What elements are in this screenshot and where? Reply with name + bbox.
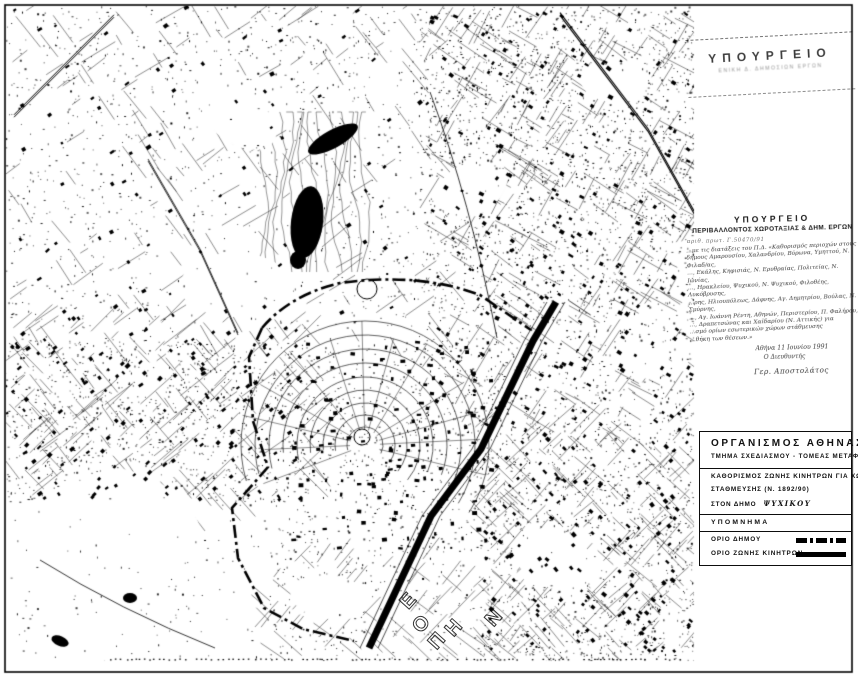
ministry-stamp-top: ΥΠΟΥΡΓΕΙΟ ΕΝΙΚΗ Δ. ΔΗΜΟΣΙΩΝ ΕΡΓΩΝ: [685, 31, 855, 98]
title-block: ΟΡΓΑΝΙΣΜΟΣ ΑΘΗΝΑΣ ΤΜΗΜΑ ΣΧΕΔΙΑΣΜΟΥ - ΤΟΜ…: [699, 431, 852, 566]
scanned-map-sheet: ΕΟΠΗΝ ΥΠΟΥΡΓΕΙΟ ΕΝΙΚΗ Δ. ΔΗΜΟΣΙΩΝ ΕΡΓΩΝ …: [0, 0, 858, 678]
divider: [700, 514, 851, 515]
ministry-stamp-main: ΥΠΟΥΡΓΕΙΟ ΠΕΡΙΒΑΛΛΟΝΤΟΣ ΧΩΡΟΤΑΞΙΑΣ & ΔΗΜ…: [686, 211, 858, 387]
subject-line-3: ΣΤΟΝ ΔΗΜΟΨΥΧΙΚΟΥ: [711, 499, 858, 508]
municipality-label: ΣΤΟΝ ΔΗΜΟ: [711, 501, 756, 508]
dash-dot-line-symbol: [796, 538, 846, 543]
divider: [700, 531, 851, 532]
subject-line-2: ΣΤΑΘΜΕΥΣΗΣ (Ν. 1892/90): [711, 486, 858, 493]
divider: [700, 468, 851, 469]
subject-line-1: ΚΑΘΟΡΙΣΜΟΣ ΖΩΝΗΣ ΚΙΝΗΤΡΩΝ ΓΙΑ ΧΩΡΟΥΣ: [711, 473, 858, 480]
legend-title: ΥΠΟΜΝΗΜΑ: [711, 519, 858, 526]
municipality-name: ΨΥΧΙΚΟΥ: [760, 499, 814, 508]
organization-title: ΟΡΓΑΝΙΣΜΟΣ ΑΘΗΝΑΣ: [711, 438, 858, 449]
handwritten-date: Αθήνα 11 Ιουνίου 1991: [755, 343, 858, 353]
solid-line-symbol: [796, 552, 846, 557]
signature: Γερ. Αποστολάτος: [754, 365, 858, 377]
handwritten-annotation: …με τις διατάξεις του Π.Δ. «Καθορισμός π…: [686, 241, 858, 345]
handwritten-signoff: Ο Διευθυντής: [764, 352, 858, 362]
department-title: ΤΜΗΜΑ ΣΧΕΔΙΑΣΜΟΥ - ΤΟΜΕΑΣ ΜΕΤΑΦΟΡΩΝ: [711, 453, 858, 460]
